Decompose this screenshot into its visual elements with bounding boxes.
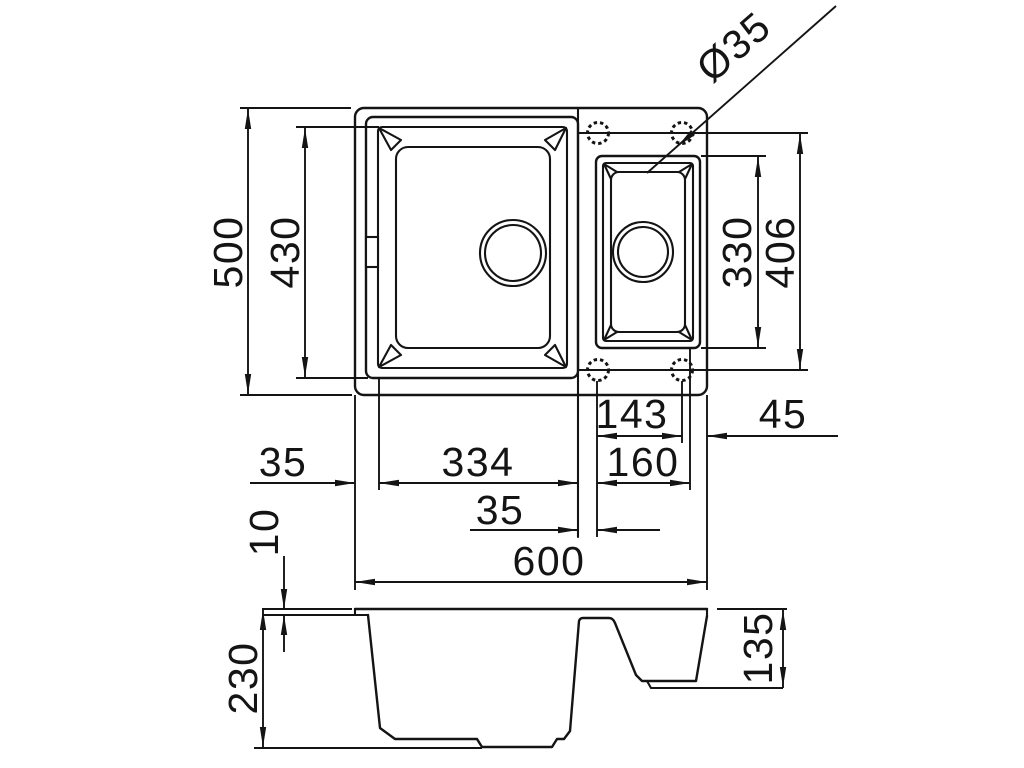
dim-overall-height-label: 230 — [220, 642, 266, 715]
top-view: 500 430 330 406 Ø35 143 45 35 334 160 35… — [205, 2, 838, 590]
dim-overall-width-label: 600 — [513, 538, 586, 584]
small-bowl — [596, 156, 700, 348]
main-bowl-bevel-rect — [378, 127, 567, 368]
small-drain-outer-circle — [613, 222, 673, 282]
overflow-slot — [366, 237, 378, 267]
dim-overall-depth-label: 500 — [205, 216, 251, 289]
dimension-lines — [245, 6, 838, 585]
dim-main-bowl-length-label: 430 — [262, 216, 308, 289]
technical-drawing-page: 500 430 330 406 Ø35 143 45 35 334 160 35… — [0, 0, 1024, 768]
dim-small-bowl-length-label: 330 — [714, 216, 760, 289]
small-drain-inner-circle — [618, 227, 668, 277]
dim-main-bowl-width-label: 334 — [442, 439, 515, 485]
small-bevel-facet-top-left — [604, 164, 617, 179]
main-drain-inner-circle — [485, 225, 541, 281]
section-profile — [368, 615, 707, 747]
section-view: 10 230 135 — [220, 508, 787, 748]
small-bevel-facet-top-right — [679, 164, 692, 179]
bevel-facet-top-right — [545, 128, 566, 150]
main-bowl — [366, 117, 578, 378]
dim-divider-width-label: 35 — [476, 487, 525, 533]
dim-holes-spacing-label: 143 — [596, 391, 669, 437]
dim-left-offset-label: 35 — [259, 439, 308, 485]
bevel-facet-bottom-right — [545, 345, 566, 367]
dim-holes-span-label: 406 — [757, 216, 803, 289]
dim-small-bowl-width-label: 160 — [607, 439, 680, 485]
sink-outer-edge — [355, 108, 707, 395]
main-bowl-inner-rect — [396, 147, 550, 348]
bevel-facet-top-left — [379, 128, 401, 150]
sink-drawing: 500 430 330 406 Ø35 143 45 35 334 160 35… — [0, 0, 1024, 768]
dim-rim-thickness-label: 10 — [241, 508, 287, 557]
small-bevel-facet-bottom-right — [679, 325, 692, 340]
main-drain-outer-circle — [480, 220, 546, 286]
dim-hole-diameter-label: Ø35 — [688, 2, 780, 91]
dim-small-bowl-depth-label: 135 — [735, 612, 781, 685]
small-bowl-bevel-rect — [603, 163, 693, 341]
dim-hole-edge-offset-label: 45 — [759, 391, 808, 437]
small-bevel-facet-bottom-left — [604, 325, 617, 340]
bevel-facet-bottom-left — [379, 345, 401, 367]
